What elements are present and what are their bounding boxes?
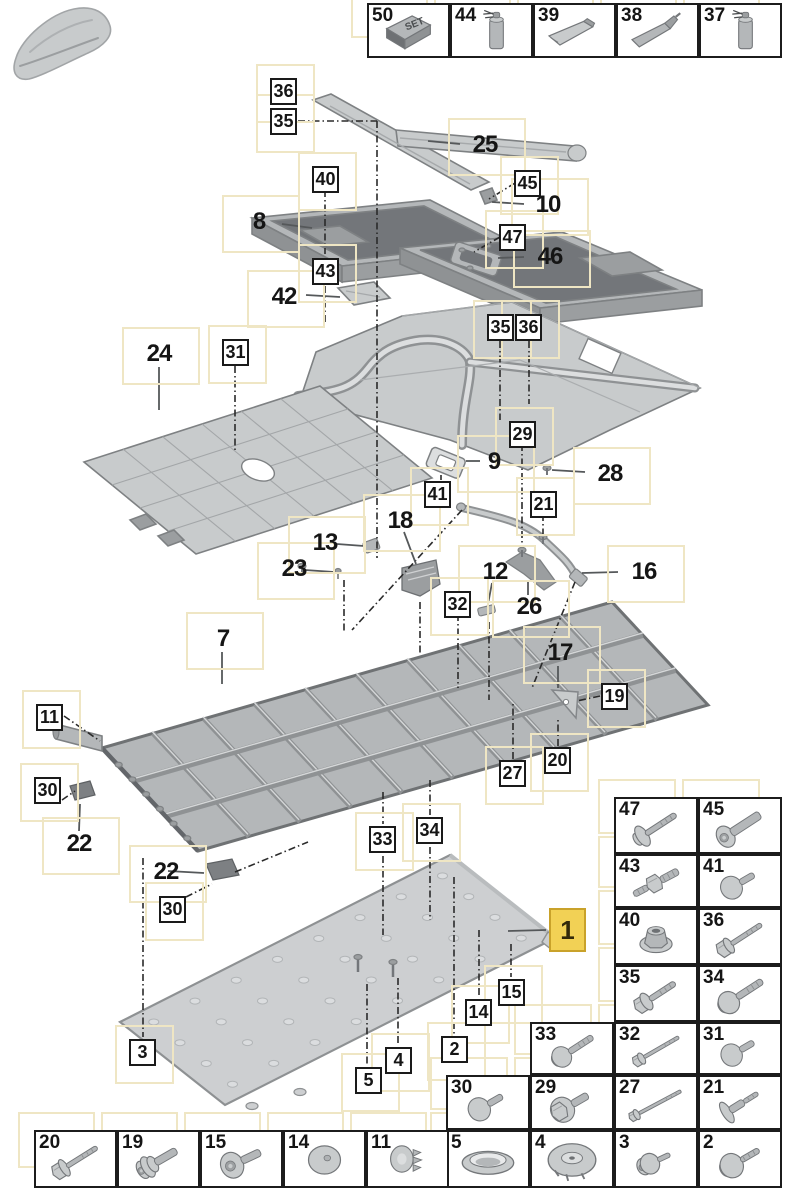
cell-number: 31	[703, 1024, 724, 1046]
callout-label: 19	[601, 683, 628, 710]
callout-46[interactable]: 46	[527, 244, 573, 270]
callout-label: 42	[261, 284, 307, 310]
grid-cell-29[interactable]: 29	[530, 1075, 614, 1130]
callout-label: 22	[56, 831, 102, 857]
callout-label: 31	[222, 339, 249, 366]
callout-29[interactable]: 29	[509, 421, 536, 448]
callout-label: 12	[472, 559, 518, 585]
cell-number: 45	[703, 799, 724, 821]
callout-2[interactable]: 2	[441, 1036, 468, 1063]
cell-number: 33	[535, 1024, 556, 1046]
callout-label: 29	[509, 421, 536, 448]
callout-label: 36	[270, 78, 297, 105]
callout-label: 22	[143, 859, 189, 885]
callout-label: 34	[416, 817, 443, 844]
cell-number: 38	[621, 5, 642, 27]
callout-label: 35	[487, 314, 514, 341]
top-strip-cell-44[interactable]: 44	[450, 3, 533, 58]
cell-number: 15	[205, 1132, 226, 1154]
callout-18[interactable]: 18	[377, 508, 423, 534]
bottom-strip-cell-15[interactable]: 15	[200, 1130, 283, 1188]
callout-label: 23	[271, 556, 317, 582]
callout-label: 16	[621, 559, 667, 585]
grid-cell-21[interactable]: 21	[698, 1075, 782, 1130]
callout-20[interactable]: 20	[544, 747, 571, 774]
callout-label: 24	[136, 341, 182, 367]
callout-label: 20	[544, 747, 571, 774]
cell-number: 39	[538, 5, 559, 27]
callout-35[interactable]: 35	[487, 314, 514, 341]
grid-cell-33[interactable]: 33	[530, 1022, 614, 1075]
callout-16[interactable]: 16	[621, 559, 667, 585]
callout-label: 36	[515, 314, 542, 341]
grid-cell-27[interactable]: 27	[614, 1075, 698, 1130]
grid-cell-30[interactable]: 30	[446, 1075, 530, 1130]
parts-catalog-page: 50SET44393837474543414036353433323130292…	[0, 0, 791, 1200]
callout-label: 33	[369, 826, 396, 853]
callout-28[interactable]: 28	[587, 461, 633, 487]
grid-cell-47[interactable]: 47	[614, 797, 698, 854]
grid-cell-35[interactable]: 35	[614, 965, 698, 1022]
callout-17[interactable]: 17	[537, 640, 583, 666]
grid-cell-36[interactable]: 36	[698, 908, 782, 965]
grid-cell-41[interactable]: 41	[698, 854, 782, 908]
callout-label: 43	[312, 258, 339, 285]
cell-number: 36	[703, 910, 724, 932]
top-strip-cell-50[interactable]: 50SET	[367, 3, 450, 58]
cell-number: 44	[455, 5, 476, 27]
callout-label: 21	[530, 491, 557, 518]
grid-cell-40[interactable]: 40	[614, 908, 698, 965]
top-strip-cell-38[interactable]: 38	[616, 3, 699, 58]
callout-label: 46	[527, 244, 573, 270]
callout-42[interactable]: 42	[261, 284, 307, 310]
cell-number: 29	[535, 1077, 556, 1099]
callout-22[interactable]: 22	[56, 831, 102, 857]
callout-15[interactable]: 15	[498, 979, 525, 1006]
callout-label: 30	[34, 777, 61, 804]
callout-label: 47	[499, 224, 526, 251]
callout-label: 3	[129, 1039, 156, 1066]
bottom-strip-cell-19[interactable]: 19	[117, 1130, 200, 1188]
car-silhouette	[5, 4, 117, 84]
callout-19[interactable]: 19	[601, 683, 628, 710]
grid-cell-5[interactable]: 5	[446, 1130, 530, 1188]
callout-30[interactable]: 30	[159, 896, 186, 923]
bottom-strip-cell-14[interactable]: 14	[283, 1130, 366, 1188]
callout-32[interactable]: 32	[444, 591, 471, 618]
callout-27[interactable]: 27	[499, 760, 526, 787]
callout-label: 7	[200, 626, 246, 652]
callout-label: 14	[465, 999, 492, 1026]
cell-number: 14	[288, 1132, 309, 1154]
callout-label: 10	[525, 192, 571, 218]
cell-number: 37	[704, 5, 725, 27]
grid-cell-31[interactable]: 31	[698, 1022, 782, 1075]
callout-43[interactable]: 43	[312, 258, 339, 285]
callout-11[interactable]: 11	[36, 704, 63, 731]
callout-label: 32	[444, 591, 471, 618]
callout-label: 9	[471, 449, 517, 475]
cell-number: 21	[703, 1077, 724, 1099]
callout-12[interactable]: 12	[472, 559, 518, 585]
callout-label: 5	[355, 1067, 382, 1094]
cell-number: 27	[619, 1077, 640, 1099]
callout-34[interactable]: 34	[416, 817, 443, 844]
callout-13[interactable]: 13	[302, 530, 348, 556]
bottom-strip-cell-20[interactable]: 20	[34, 1130, 117, 1188]
grid-cell-43[interactable]: 43	[614, 854, 698, 908]
cell-number: 2	[703, 1132, 714, 1154]
cell-number: 30	[451, 1077, 472, 1099]
callout-8[interactable]: 8	[236, 209, 282, 235]
cell-number: 4	[535, 1132, 546, 1154]
callout-label: 28	[587, 461, 633, 487]
top-strip-cell-39[interactable]: 39	[533, 3, 616, 58]
callout-4[interactable]: 4	[385, 1047, 412, 1074]
cell-number: 47	[619, 799, 640, 821]
top-strip-cell-37[interactable]: 37	[699, 3, 782, 58]
callout-label: 13	[302, 530, 348, 556]
callout-label: 25	[462, 132, 508, 158]
callout-3[interactable]: 3	[129, 1039, 156, 1066]
callout-35[interactable]: 35	[270, 108, 297, 135]
callout-30[interactable]: 30	[34, 777, 61, 804]
callout-label: 8	[236, 209, 282, 235]
callout-26[interactable]: 26	[506, 594, 552, 620]
callout-40[interactable]: 40	[312, 166, 339, 193]
callout-label: 2	[441, 1036, 468, 1063]
callout-5[interactable]: 5	[355, 1067, 382, 1094]
callout-14[interactable]: 14	[465, 999, 492, 1026]
callout-label: 18	[377, 508, 423, 534]
cell-number: 43	[619, 856, 640, 878]
grid-cell-3[interactable]: 3	[614, 1130, 698, 1188]
cell-number: 34	[703, 967, 724, 989]
cell-number: 19	[122, 1132, 143, 1154]
callout-47[interactable]: 47	[499, 224, 526, 251]
callout-1[interactable]: 1	[549, 908, 586, 952]
callout-label: 15	[498, 979, 525, 1006]
grid-cell-34[interactable]: 34	[698, 965, 782, 1022]
callout-33[interactable]: 33	[369, 826, 396, 853]
callout-label: 26	[506, 594, 552, 620]
callout-23[interactable]: 23	[271, 556, 317, 582]
cell-number: 5	[451, 1132, 462, 1154]
callout-label: 30	[159, 896, 186, 923]
grid-cell-32[interactable]: 32	[614, 1022, 698, 1075]
callout-label: 4	[385, 1047, 412, 1074]
callout-10[interactable]: 10	[525, 192, 571, 218]
bottom-strip-cell-11[interactable]: 11	[366, 1130, 449, 1188]
callout-22[interactable]: 22	[143, 859, 189, 885]
grid-cell-4[interactable]: 4	[530, 1130, 614, 1188]
callout-36[interactable]: 36	[515, 314, 542, 341]
grid-cell-2[interactable]: 2	[698, 1130, 782, 1188]
callout-7[interactable]: 7	[200, 626, 246, 652]
cell-number: 20	[39, 1132, 60, 1154]
callout-label: 35	[270, 108, 297, 135]
callout-31[interactable]: 31	[222, 339, 249, 366]
grid-cell-45[interactable]: 45	[698, 797, 782, 854]
callout-label: 1	[549, 908, 586, 952]
cell-number: 50	[372, 5, 393, 27]
cell-number: 40	[619, 910, 640, 932]
cell-number: 11	[371, 1132, 391, 1154]
callout-24[interactable]: 24	[136, 341, 182, 367]
cell-number: 41	[703, 856, 724, 878]
callout-9[interactable]: 9	[471, 449, 517, 475]
callout-label: 41	[424, 481, 451, 508]
callout-label: 11	[36, 704, 63, 731]
callout-21[interactable]: 21	[530, 491, 557, 518]
callout-label: 17	[537, 640, 583, 666]
cell-number: 32	[619, 1024, 640, 1046]
callout-label: 40	[312, 166, 339, 193]
callout-41[interactable]: 41	[424, 481, 451, 508]
callout-25[interactable]: 25	[462, 132, 508, 158]
cell-number: 3	[619, 1132, 630, 1154]
cell-number: 35	[619, 967, 640, 989]
callout-label: 27	[499, 760, 526, 787]
callout-36[interactable]: 36	[270, 78, 297, 105]
